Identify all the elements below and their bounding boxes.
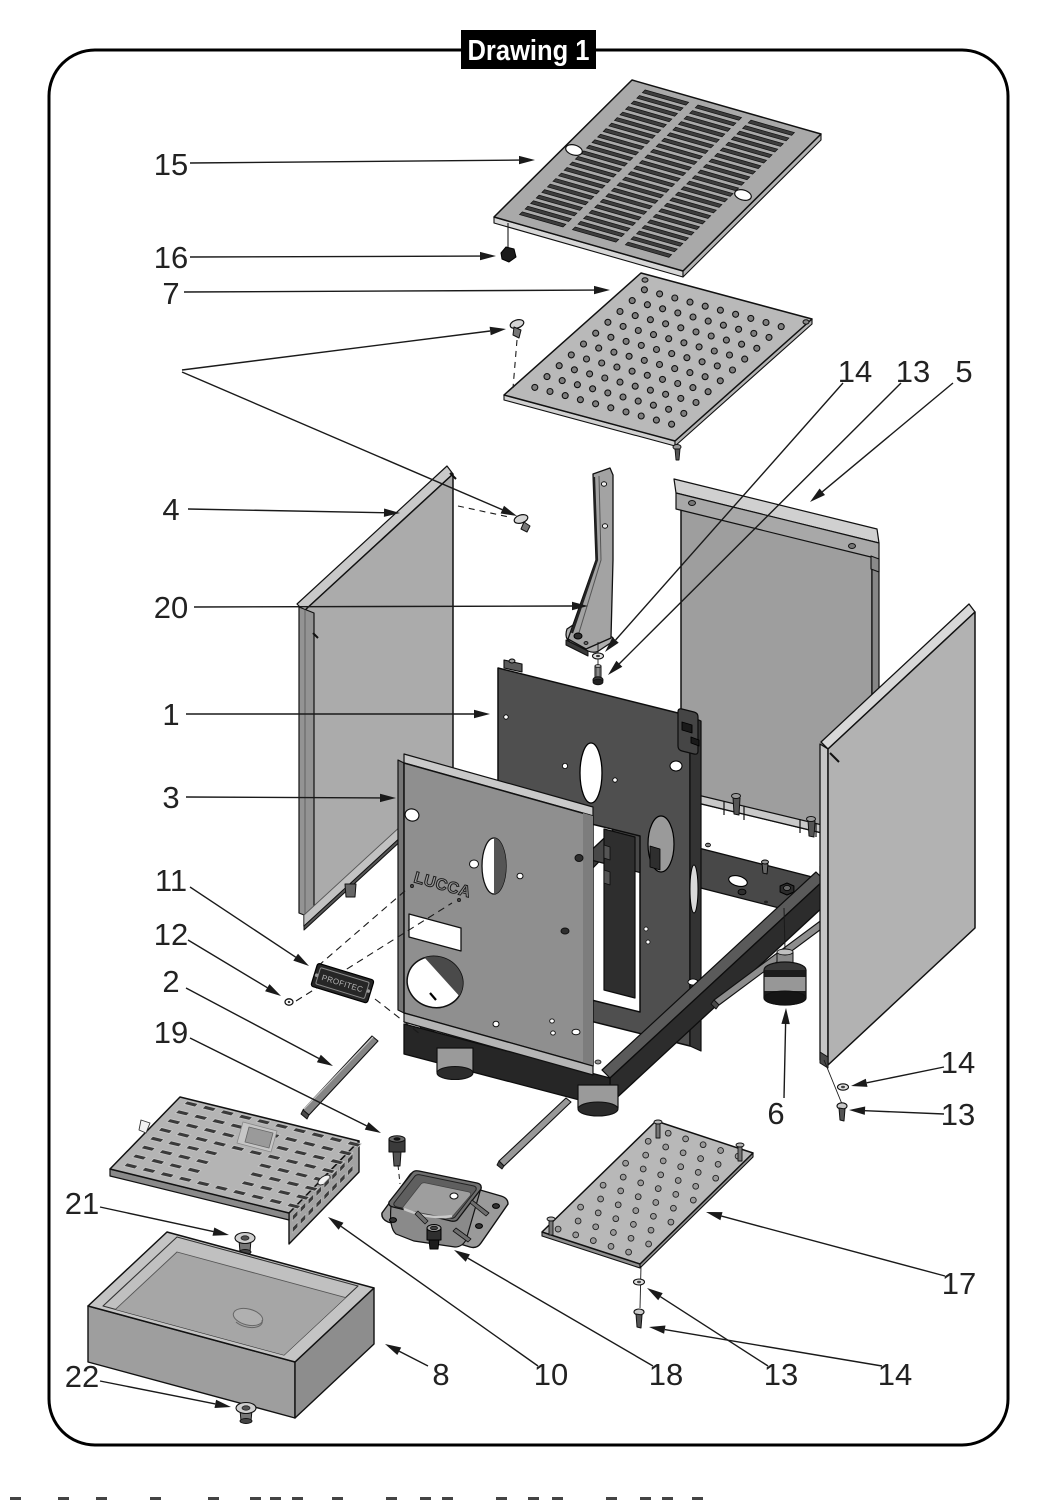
- svg-text:13: 13: [764, 1357, 798, 1392]
- svg-text:11: 11: [155, 863, 187, 898]
- svg-text:6: 6: [767, 1096, 784, 1131]
- svg-text:4: 4: [162, 492, 179, 527]
- svg-text:18: 18: [649, 1357, 683, 1392]
- svg-text:10: 10: [534, 1357, 568, 1392]
- svg-text:12: 12: [154, 917, 188, 952]
- svg-text:14: 14: [838, 354, 872, 389]
- svg-text:14: 14: [878, 1357, 912, 1392]
- svg-text:2: 2: [162, 964, 179, 999]
- svg-text:5: 5: [955, 354, 972, 389]
- svg-text:19: 19: [154, 1015, 188, 1050]
- svg-text:14: 14: [941, 1045, 975, 1080]
- svg-text:13: 13: [896, 354, 930, 389]
- svg-text:1: 1: [162, 697, 179, 732]
- svg-text:22: 22: [65, 1359, 99, 1394]
- svg-text:20: 20: [154, 590, 188, 625]
- svg-text:13: 13: [941, 1097, 975, 1132]
- svg-text:21: 21: [65, 1186, 99, 1221]
- svg-text:7: 7: [162, 276, 179, 311]
- svg-text:8: 8: [432, 1357, 449, 1392]
- svg-text:3: 3: [162, 780, 179, 815]
- svg-text:Drawing 1: Drawing 1: [468, 35, 590, 67]
- svg-text:17: 17: [942, 1266, 976, 1301]
- svg-text:16: 16: [154, 240, 188, 275]
- svg-text:15: 15: [154, 147, 188, 182]
